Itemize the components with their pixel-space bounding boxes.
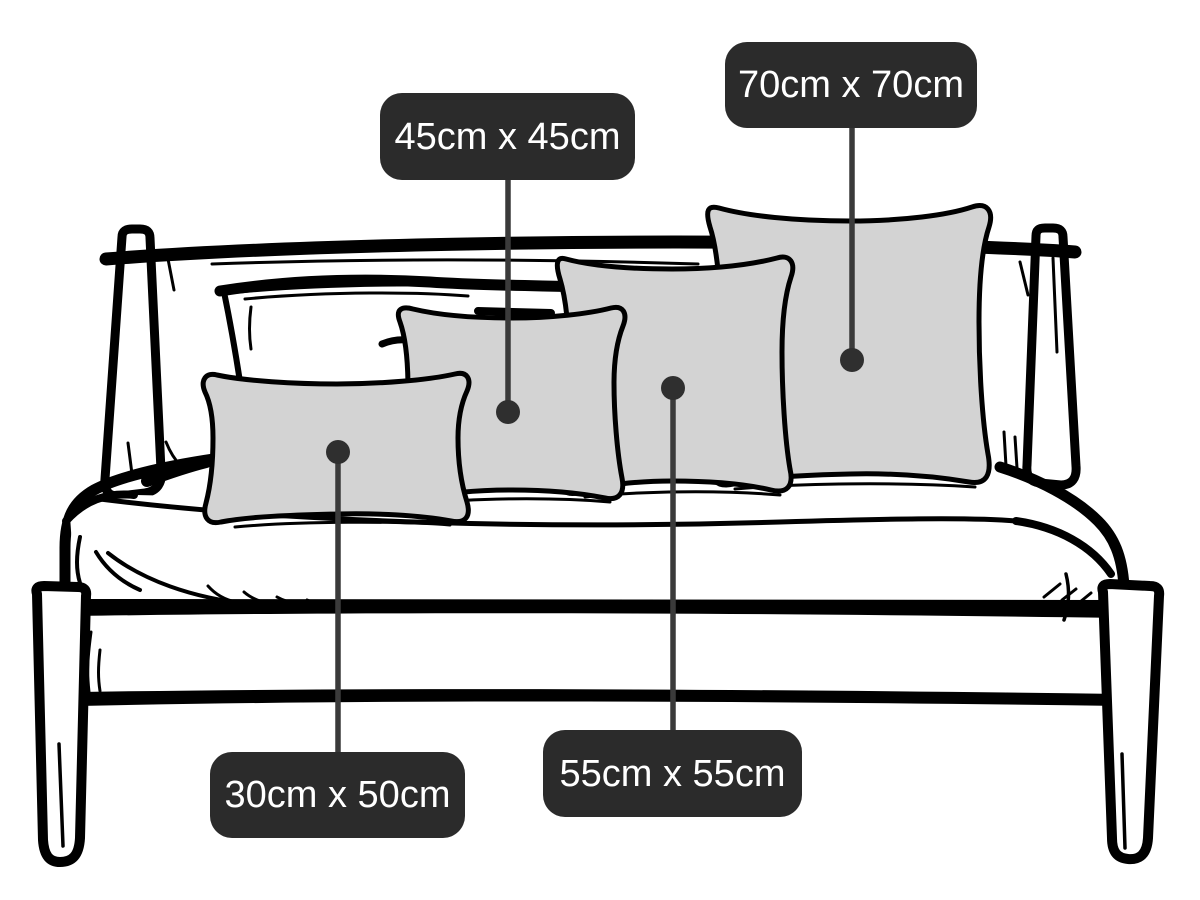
callout-dot-30x50: [326, 440, 350, 464]
callout-30x50: [326, 440, 350, 752]
size-label-55x55: 55cm x 55cm: [543, 730, 802, 817]
size-label-70x70: 70cm x 70cm: [725, 42, 977, 128]
callout-55x55: [661, 376, 685, 730]
callout-70x70: [840, 128, 864, 372]
callout-dot-70x70: [840, 348, 864, 372]
callout-45x45: [496, 180, 520, 424]
callout-dot-55x55: [661, 376, 685, 400]
size-label-30x50: 30cm x 50cm: [210, 752, 465, 838]
callout-dot-45x45: [496, 400, 520, 424]
size-label-45x45: 45cm x 45cm: [380, 93, 635, 180]
cushion-size-diagram: 30cm x 50cm 45cm x 45cm 55cm x 55cm 70cm…: [0, 0, 1200, 900]
